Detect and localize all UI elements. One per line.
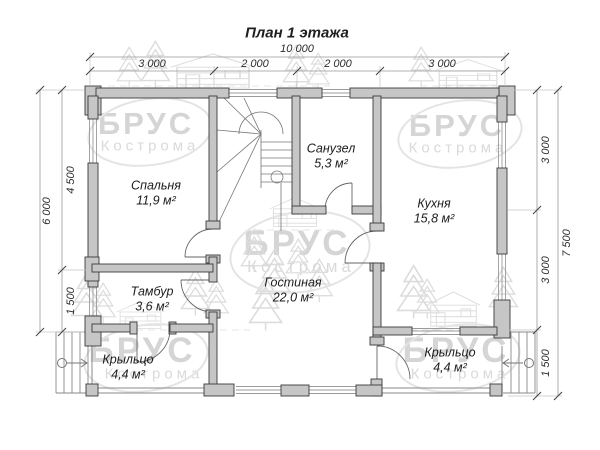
room-name: Кухня bbox=[414, 196, 455, 211]
room-area: 5,3 м² bbox=[307, 156, 356, 171]
room-name: Крыльцо bbox=[102, 352, 153, 367]
dim-right-segment: 3 000 bbox=[540, 256, 552, 284]
room-name: Гостиная bbox=[264, 275, 321, 290]
dim-right-segment: 1 500 bbox=[540, 349, 552, 377]
room-label-vestibule: Тамбур 3,6 м² bbox=[131, 284, 174, 314]
dim-left-segment: 1 500 bbox=[65, 287, 77, 315]
dim-right-total: 7 500 bbox=[561, 229, 573, 257]
page-title: План 1 этажа bbox=[245, 25, 349, 42]
room-label-porch-right: Крыльцо 4,4 м² bbox=[424, 345, 475, 375]
room-area: 15,8 м² bbox=[414, 211, 455, 226]
room-area: 4,4 м² bbox=[424, 360, 475, 375]
dim-top-segment: 2 000 bbox=[324, 58, 352, 70]
room-name: Спальня bbox=[131, 178, 181, 193]
room-label-kitchen: Кухня 15,8 м² bbox=[414, 196, 455, 226]
room-area: 11,9 м² bbox=[131, 193, 181, 208]
dim-top-segment: 3 000 bbox=[138, 58, 166, 70]
room-area: 22,0 м² bbox=[264, 290, 321, 305]
dim-left-segment: 4 500 bbox=[65, 166, 77, 194]
room-name: Крыльцо bbox=[424, 345, 475, 360]
room-name: Тамбур bbox=[131, 284, 174, 299]
dim-top-total: 10 000 bbox=[280, 43, 314, 55]
dim-left-total: 6 000 bbox=[41, 197, 53, 225]
room-area: 3,6 м² bbox=[131, 299, 174, 314]
room-area: 4,4 м² bbox=[102, 367, 153, 382]
dim-right-segment: 3 000 bbox=[540, 136, 552, 164]
dim-top-segment: 2 000 bbox=[241, 58, 269, 70]
room-label-porch-left: Крыльцо 4,4 м² bbox=[102, 352, 153, 382]
room-name: Санузел bbox=[307, 141, 356, 156]
room-label-bathroom: Санузел 5,3 м² bbox=[307, 141, 356, 171]
text-layer: План 1 этажа 10 000 3 000 2 000 2 000 3 … bbox=[0, 0, 600, 450]
floor-plan-page: БРУС Кострома БРУС Кострома БРУС Костром… bbox=[0, 0, 600, 450]
room-label-living: Гостиная 22,0 м² bbox=[264, 275, 321, 305]
room-label-bedroom: Спальня 11,9 м² bbox=[131, 178, 181, 208]
dim-top-segment: 3 000 bbox=[428, 58, 456, 70]
